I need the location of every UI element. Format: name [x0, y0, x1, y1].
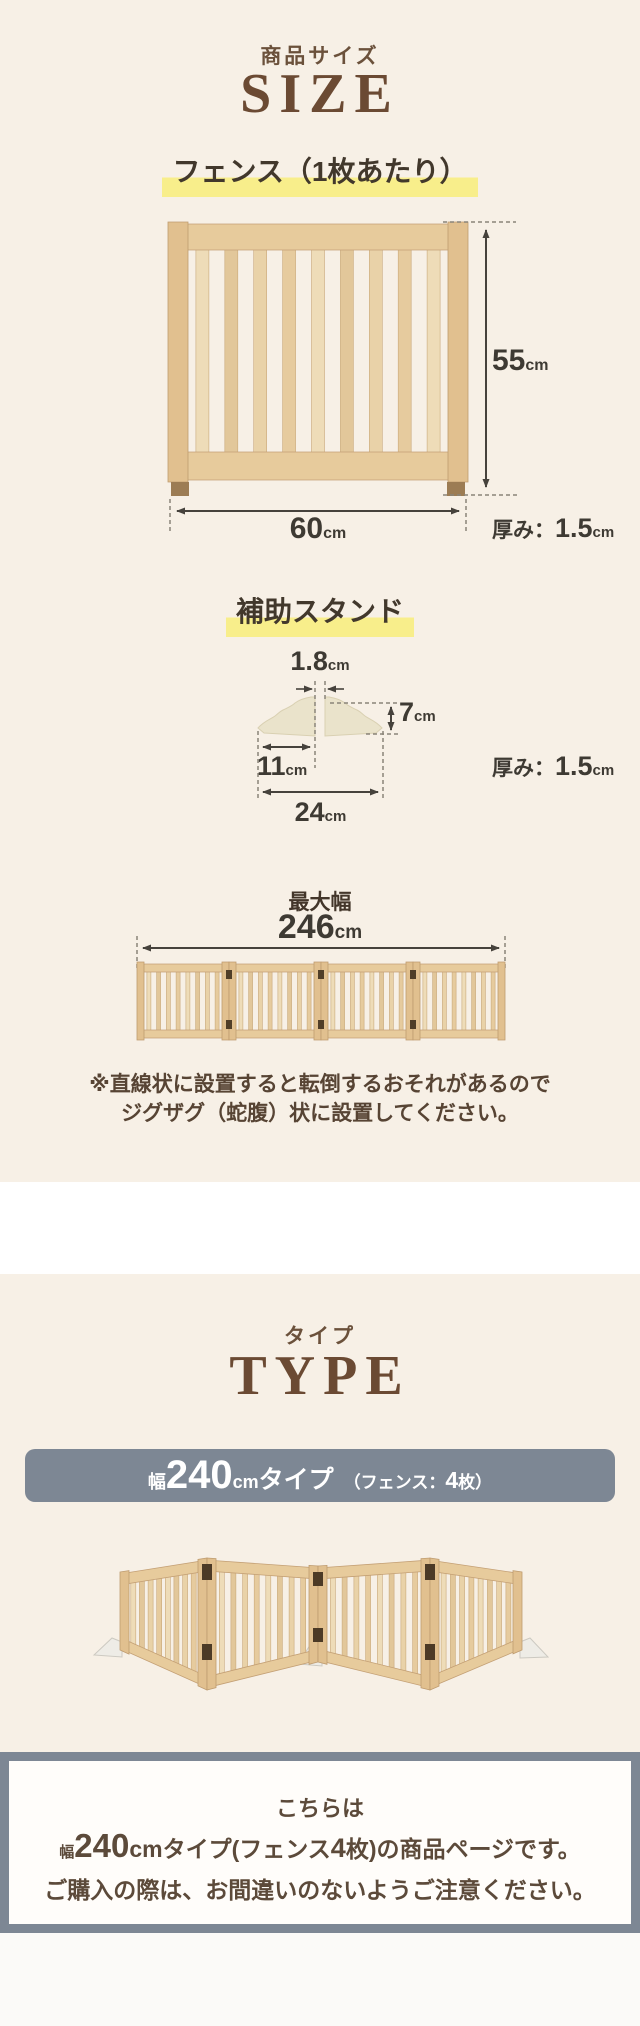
max-width-value-label: 246cm: [0, 908, 640, 947]
size-title: SIZE: [0, 62, 640, 126]
fence-thickness-label: 厚み：1.5cm: [492, 513, 614, 544]
notice-line3: ご購入の際は、お間違いのないようご注意ください。: [9, 1871, 631, 1905]
notice-frame: こちらは 幅240cmタイプ(フェンス4枚)の商品ページです。 ご購入の際は、お…: [0, 1752, 640, 1933]
stand-thickness-label: 厚み：1.5cm: [492, 751, 614, 782]
fence-height-label: 55cm: [492, 344, 549, 378]
section-divider: [0, 1182, 640, 1274]
stand-heading: 補助スタンド: [0, 590, 640, 637]
fence-width-unit: cm: [323, 525, 346, 542]
fence-heading: フェンス（1枚あたり）: [0, 150, 640, 197]
product-size-page: 商品サイズ SIZE フェンス（1枚あたり） 55cm 60cm 厚み：1.5c…: [0, 0, 640, 2026]
banner-panel-count: （フェンス：4枚）: [344, 1473, 492, 1492]
bottom-spacer: [0, 1933, 640, 2026]
banner-width-prefix: 幅: [148, 1472, 166, 1492]
fence-height-value: 55: [492, 344, 525, 377]
fence-width-label: 60cm: [168, 512, 468, 546]
type-title: TYPE: [0, 1344, 640, 1408]
stand-width-label: 24cm: [258, 797, 383, 828]
fence-height-unit: cm: [525, 357, 548, 374]
stand-inner-width-label: 11cm: [257, 751, 307, 782]
notice-line1: こちらは: [9, 1791, 631, 1823]
banner-width-unit: cm: [233, 1472, 259, 1492]
placement-note-line1: ※直線状に設置すると転倒するおそれがあるので: [0, 1068, 640, 1098]
banner-type-suffix: タイプ: [259, 1466, 334, 1494]
banner-width-value: 240: [166, 1453, 233, 1497]
stand-heading-text: 補助スタンド: [226, 590, 414, 637]
placement-note-line2: ジグザグ（蛇腹）状に設置してください。: [0, 1097, 640, 1127]
type-banner: 幅240cmタイプ（フェンス：4枚）: [25, 1449, 615, 1502]
stand-height-label: 7cm: [399, 697, 436, 728]
stand-slot-label: 1.8cm: [250, 646, 390, 677]
notice-line2: 幅240cmタイプ(フェンス4枚)の商品ページです。: [9, 1827, 631, 1865]
fence-width-value: 60: [290, 512, 323, 545]
notice-box: こちらは 幅240cmタイプ(フェンス4枚)の商品ページです。 ご購入の際は、お…: [9, 1761, 631, 1924]
fence-heading-text: フェンス（1枚あたり）: [162, 150, 477, 197]
